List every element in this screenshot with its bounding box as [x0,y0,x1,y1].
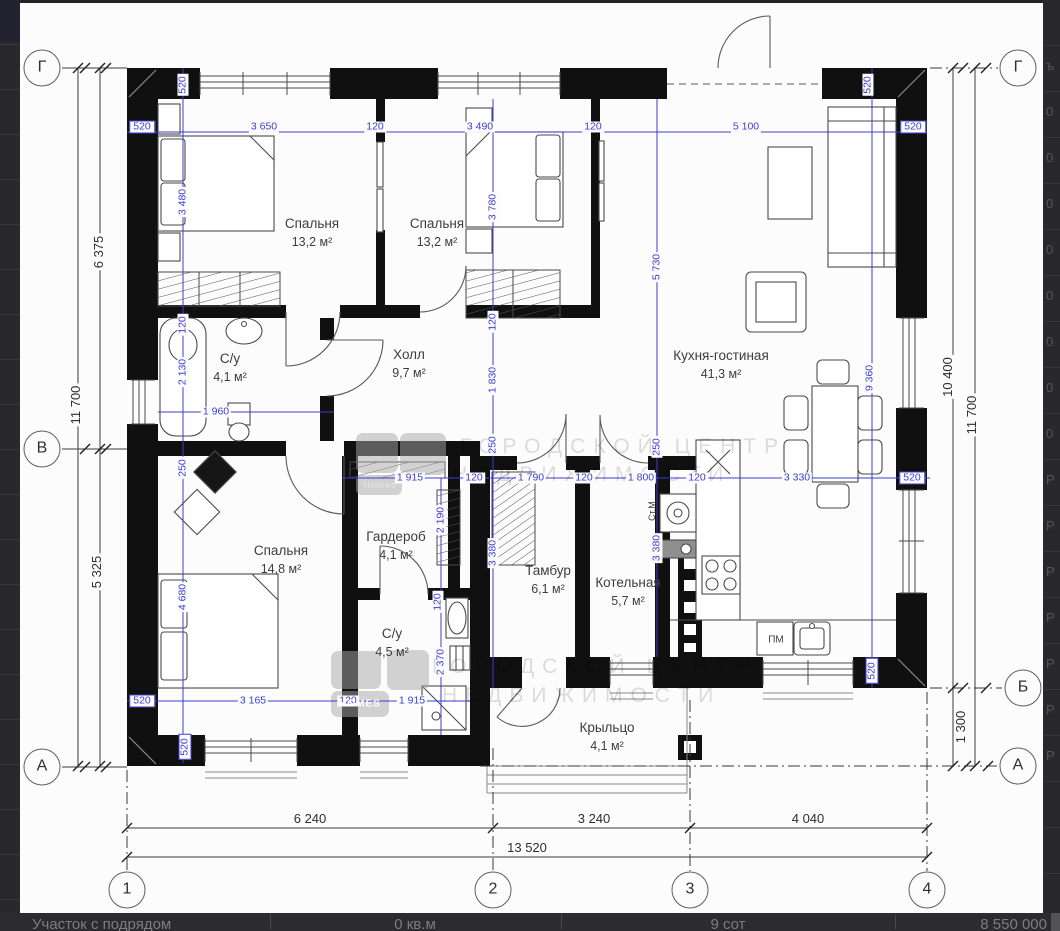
left-panel-edge [0,0,20,913]
truncated-glyph: Р [1046,472,1055,487]
footer-divider [895,915,896,929]
listing-type: Участок с подрядом [32,914,171,931]
truncated-glyph: Р [1046,702,1055,717]
truncated-glyph: ъ [1046,58,1054,73]
listing-land: 9 сот [563,914,893,931]
truncated-glyph: 0 [1046,242,1053,257]
right-panel-edge: ъ00000000РРРРРРР [1043,0,1060,913]
truncated-glyph: 0 [1046,196,1053,211]
footer-divider [270,915,271,929]
truncated-glyph: Р [1046,518,1055,533]
truncated-glyph: Р [1046,748,1055,763]
truncated-glyph: 0 [1046,150,1053,165]
footer-divider [561,915,562,929]
truncated-glyph: 0 [1046,380,1053,395]
listing-area: 0 кв.м [280,914,550,931]
floor-plan-drawing [20,3,1043,913]
app-window: ъ00000000РРРРРРР [0,0,1060,931]
listing-info-bar: Участок с подрядом 0 кв.м 9 сот 8 550 00… [0,913,1060,931]
truncated-glyph: Р [1046,656,1055,671]
truncated-glyph: 0 [1046,288,1053,303]
truncated-glyph: 0 [1046,104,1053,119]
scrollbar-fragment[interactable] [1051,913,1060,931]
truncated-glyph: Р [1046,610,1055,625]
truncated-glyph: 0 [1046,426,1053,441]
floor-plan-image[interactable]: ГОРОДСКОЙ ЦЕНТРНЕДВИЖИМОСТИГОРОДСКОЙ ЦЕН… [20,3,1043,913]
truncated-glyph: Р [1046,564,1055,579]
truncated-glyph: 0 [1046,334,1053,349]
listing-price: 8 550 000 [897,914,1047,931]
